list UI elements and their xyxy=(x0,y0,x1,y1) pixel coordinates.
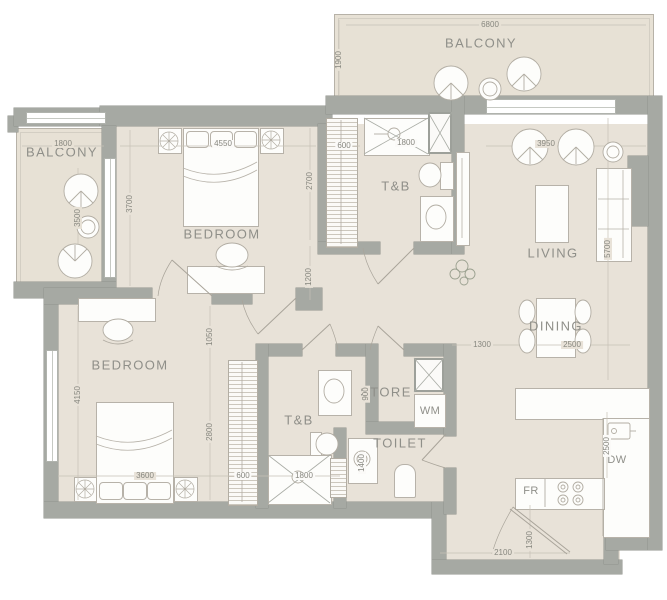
nightstand xyxy=(174,477,198,502)
dim-living-depth: 5700 xyxy=(604,238,612,260)
room-label-tb-1: T&B xyxy=(381,179,410,194)
dim-bedroom2-right-lower: 2800 xyxy=(206,421,214,443)
dim-tb1-closet: 600 xyxy=(335,142,352,150)
window xyxy=(46,350,58,462)
room-label-dining: DINING xyxy=(529,319,583,334)
shaft xyxy=(414,358,444,392)
shower xyxy=(364,118,430,156)
room-label-toilet: TOILET xyxy=(373,436,427,451)
wall xyxy=(648,96,662,550)
wardrobe xyxy=(326,118,358,248)
nightstand xyxy=(260,128,284,154)
kitchen-counter xyxy=(515,388,650,420)
room-label-bedroom-1: BEDROOM xyxy=(184,227,261,242)
desk xyxy=(187,266,265,294)
wall xyxy=(336,344,366,356)
desk xyxy=(78,298,156,322)
wall xyxy=(444,468,456,514)
floor-plan: BALCONY BALCONY BEDROOM T&B LIVING DININ… xyxy=(0,0,667,600)
sofa xyxy=(596,168,632,262)
dim-bedroom1-right: 2700 xyxy=(306,170,314,192)
room-label-living: LIVING xyxy=(527,246,578,261)
toilet-tank xyxy=(440,162,454,190)
coffee-table xyxy=(535,185,569,243)
room-label-fr: FR xyxy=(523,485,538,497)
dim-balcony-left-depth: 3500 xyxy=(74,207,82,229)
window xyxy=(26,112,106,124)
room-label-tb-2: T&B xyxy=(284,413,313,428)
pillow xyxy=(234,131,257,148)
wall xyxy=(296,288,322,310)
window xyxy=(104,158,116,278)
dim-balcony-left-width: 1800 xyxy=(52,140,74,148)
dim-living-width: 3950 xyxy=(535,140,557,148)
dim-bedroom2-bed: 3600 xyxy=(134,472,156,480)
dim-bedroom2-closet: 600 xyxy=(234,472,251,480)
vanity xyxy=(420,196,454,242)
room-label-wm: WM xyxy=(420,405,440,417)
dim-kitchen-depth: 2500 xyxy=(603,435,611,457)
shower xyxy=(268,455,332,505)
toilet-bowl xyxy=(394,464,416,498)
dim-bedroom1-side: 3700 xyxy=(126,193,134,215)
window xyxy=(486,99,616,114)
dim-dining-width: 2500 xyxy=(561,341,583,349)
dim-tb2-shower: 1800 xyxy=(293,472,315,480)
tv-unit xyxy=(456,152,470,246)
wall xyxy=(432,560,622,574)
pillow xyxy=(147,482,171,500)
dim-entry-width: 2100 xyxy=(492,549,514,557)
dim-bedroom1-right-lower: 1200 xyxy=(305,266,313,288)
pillow xyxy=(99,482,123,500)
dim-balcony-top-depth: 1900 xyxy=(335,49,343,71)
dim-entry-depth: 1300 xyxy=(526,529,534,551)
dim-balcony-top-width: 6800 xyxy=(479,21,501,29)
wall xyxy=(100,106,332,126)
room-label-bedroom-2: BEDROOM xyxy=(92,358,169,373)
dim-toilet-vanity: 1400 xyxy=(358,452,366,474)
room-label-balcony-top: BALCONY xyxy=(445,36,517,51)
nightstand xyxy=(74,477,98,502)
dim-bedroom1-width: 4550 xyxy=(212,140,234,148)
dim-dining-left: 1300 xyxy=(471,341,493,349)
vanity xyxy=(318,370,352,416)
shaft xyxy=(428,112,452,154)
dim-bedroom2-side: 4150 xyxy=(74,384,82,406)
pillow xyxy=(186,131,209,148)
dim-bedroom2-right-upper: 1050 xyxy=(206,326,214,348)
dim-tb1-shower: 1800 xyxy=(395,139,417,147)
nightstand xyxy=(158,128,182,154)
pillow xyxy=(123,482,147,500)
dim-store-depth: 900 xyxy=(362,385,370,402)
wardrobe xyxy=(228,360,258,506)
shaft xyxy=(330,458,347,498)
